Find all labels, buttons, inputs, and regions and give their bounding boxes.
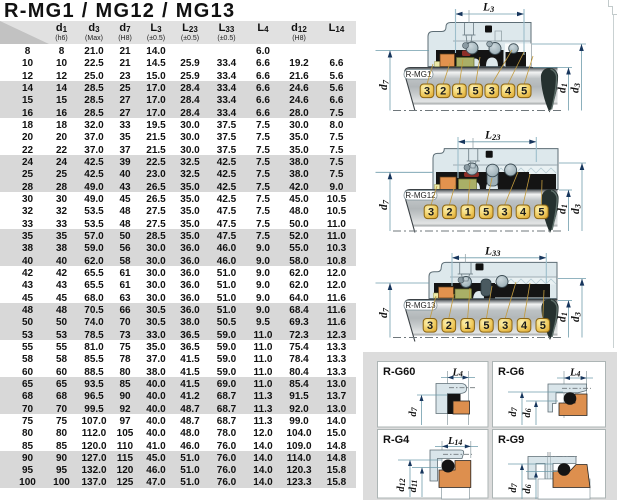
svg-text:2: 2 bbox=[446, 207, 452, 219]
svg-text:d1: d1 bbox=[557, 204, 570, 214]
svg-text:R-G6: R-G6 bbox=[498, 366, 524, 378]
svg-text:R-G9: R-G9 bbox=[498, 434, 524, 446]
svg-text:R-G4: R-G4 bbox=[383, 434, 410, 446]
svg-text:3: 3 bbox=[502, 207, 508, 219]
svg-text:d1: d1 bbox=[557, 312, 570, 322]
svg-text:3: 3 bbox=[428, 207, 434, 219]
svg-text:d7: d7 bbox=[508, 406, 519, 416]
svg-text:d7: d7 bbox=[508, 482, 519, 492]
svg-text:d6: d6 bbox=[522, 408, 533, 417]
svg-text:5: 5 bbox=[473, 86, 479, 98]
svg-text:2: 2 bbox=[446, 320, 452, 332]
svg-text:5: 5 bbox=[540, 320, 546, 332]
svg-text:L23: L23 bbox=[484, 129, 501, 142]
svg-text:d7: d7 bbox=[378, 79, 391, 90]
svg-text:d7: d7 bbox=[378, 307, 391, 318]
svg-text:1: 1 bbox=[465, 320, 471, 332]
svg-text:d3: d3 bbox=[570, 311, 583, 322]
svg-text:d11: d11 bbox=[408, 480, 419, 493]
svg-text:d3: d3 bbox=[570, 82, 583, 93]
svg-text:1: 1 bbox=[465, 207, 471, 219]
svg-text:3: 3 bbox=[502, 320, 508, 332]
svg-text:5: 5 bbox=[483, 207, 489, 219]
svg-text:1: 1 bbox=[456, 86, 462, 98]
svg-text:4: 4 bbox=[505, 86, 512, 98]
svg-text:L3: L3 bbox=[482, 2, 495, 15]
svg-text:R-MG1: R-MG1 bbox=[406, 70, 432, 79]
svg-text:d3: d3 bbox=[570, 203, 583, 214]
svg-text:L4: L4 bbox=[569, 368, 580, 379]
svg-text:L33: L33 bbox=[484, 245, 501, 257]
svg-text:L4: L4 bbox=[452, 368, 463, 379]
svg-text:5: 5 bbox=[483, 320, 489, 332]
svg-text:d7: d7 bbox=[408, 406, 419, 416]
svg-text:3: 3 bbox=[424, 86, 430, 98]
svg-text:R-G60: R-G60 bbox=[383, 366, 415, 378]
svg-text:3: 3 bbox=[489, 86, 495, 98]
svg-text:4: 4 bbox=[520, 207, 527, 219]
svg-text:4: 4 bbox=[521, 320, 528, 332]
svg-text:L14: L14 bbox=[447, 436, 462, 447]
svg-text:5: 5 bbox=[521, 86, 527, 98]
svg-text:5: 5 bbox=[538, 207, 544, 219]
svg-text:R-MG12: R-MG12 bbox=[405, 191, 436, 200]
svg-text:R-MG13: R-MG13 bbox=[405, 301, 436, 310]
svg-text:d7: d7 bbox=[378, 199, 391, 210]
svg-text:d1: d1 bbox=[557, 83, 570, 93]
svg-text:d6: d6 bbox=[522, 484, 533, 493]
svg-text:3: 3 bbox=[427, 320, 433, 332]
svg-text:d12: d12 bbox=[396, 478, 407, 491]
svg-text:2: 2 bbox=[440, 86, 446, 98]
